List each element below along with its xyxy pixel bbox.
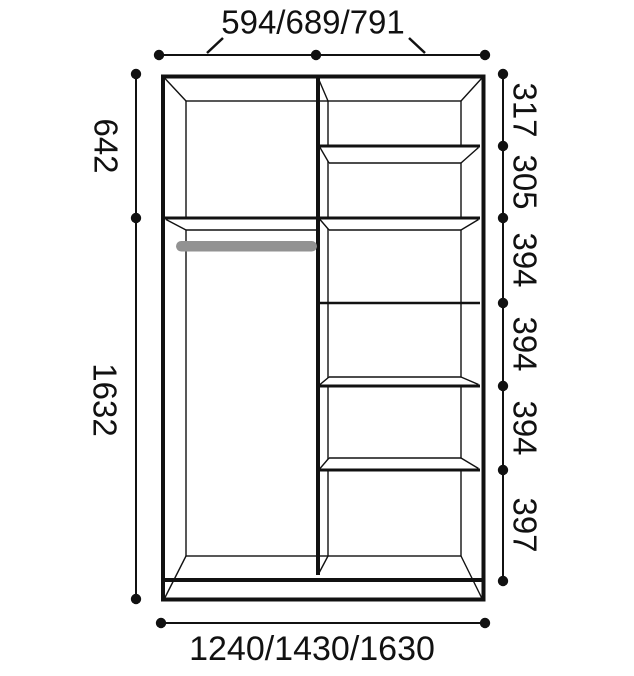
left-height-label-bottom: 1632 [87, 363, 124, 436]
dimension-dot [498, 576, 508, 586]
leader-tick-right [409, 38, 425, 53]
right-height-label-5: 394 [507, 400, 544, 455]
dimension-dot [131, 69, 141, 79]
dimension-dot [498, 69, 508, 79]
dimension-dot [498, 381, 508, 391]
dimension-dot [498, 141, 508, 151]
dimension-dot [131, 594, 141, 604]
right-height-label-4: 394 [507, 316, 544, 371]
right-shelf-5 [318, 458, 480, 470]
wardrobe-diagram: 594/689/791 1240/1430/1630 642 1632 317 … [0, 0, 634, 676]
bottom-width-label: 1240/1430/1630 [189, 630, 435, 668]
top-dimension: 594/689/791 [154, 4, 490, 61]
shelf-underside-face [165, 218, 316, 230]
right-height-label-1: 317 [507, 82, 544, 137]
dimension-dot [311, 50, 321, 60]
dimension-dot [480, 618, 490, 628]
right-height-label-3: 394 [507, 232, 544, 287]
left-height-label-top: 642 [88, 118, 125, 173]
dimension-dot [498, 213, 508, 223]
left-dimension: 642 1632 [87, 69, 142, 604]
right-height-label-2: 305 [507, 154, 544, 209]
dimension-dot [498, 298, 508, 308]
right-dimension: 317 305 394 394 394 397 [498, 69, 544, 586]
top-width-label: 594/689/791 [221, 4, 405, 41]
dimension-dot [480, 50, 490, 60]
shelf-top-face [318, 458, 480, 470]
dimension-dot [156, 618, 166, 628]
dimension-dot [131, 213, 141, 223]
right-shelf-1 [318, 146, 480, 163]
dimension-dot [498, 465, 508, 475]
bottom-dimension: 1240/1430/1630 [156, 618, 490, 668]
right-shelf-4 [318, 377, 480, 386]
hanging-rod [176, 241, 317, 252]
dimension-dot [154, 50, 164, 60]
shelf-underside-face [318, 218, 480, 230]
right-height-label-6: 397 [507, 497, 544, 552]
shelf-underside-face [318, 146, 480, 163]
